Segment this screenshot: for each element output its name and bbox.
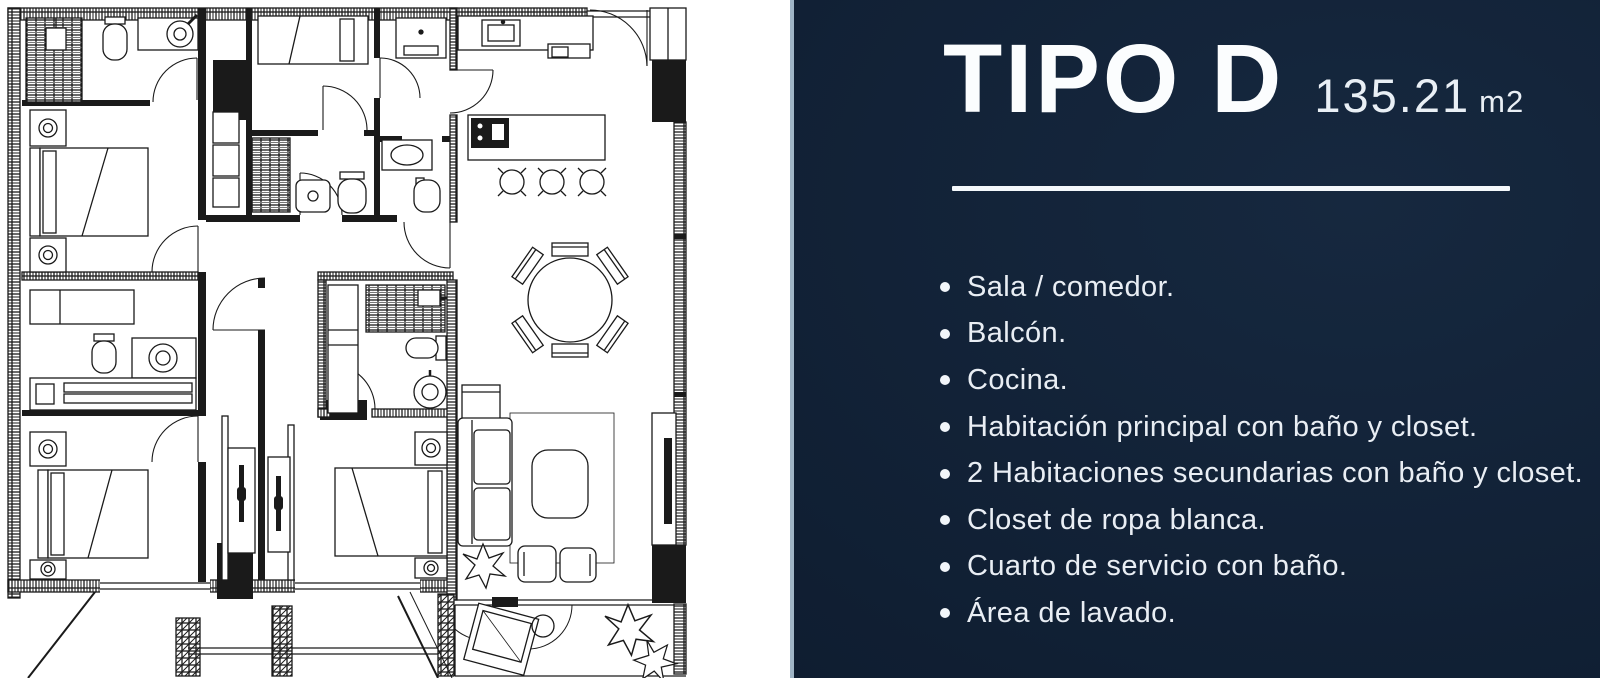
bullet-icon [940,515,950,525]
feature-label: Habitación principal con baño y closet. [967,411,1478,444]
feature-label: Área de lavado. [967,597,1176,630]
service-room [382,18,446,212]
master-bathroom [26,15,198,102]
linen-closet [213,112,239,207]
secondary-bathroom-2 [328,285,447,413]
floor-plan-svg [0,0,790,678]
secondary-bedroom-2 [30,290,196,579]
feature-label: 2 Habitaciones secundarias con baño y cl… [967,457,1583,490]
terrace [28,592,454,678]
floor-plan-area [0,0,790,678]
coffee-table [532,450,588,518]
bar-stools [498,168,606,196]
feature-item: Habitación principal con baño y closet. [940,404,1583,451]
feature-item: Sala / comedor. [940,264,1583,311]
secondary-bedroom-1 [258,16,368,64]
feature-label: Cocina. [967,364,1068,397]
dining-table [512,243,628,357]
area-unit: m2 [1479,84,1524,119]
unit-type-title: TIPO D [943,30,1284,127]
feature-item: Balcón. [940,311,1583,358]
flyer: TIPO D 135.21m2 Sala / comedor. Balcón. … [0,0,1600,678]
info-panel: TIPO D 135.21m2 Sala / comedor. Balcón. … [790,0,1600,678]
feature-label: Closet de ropa blanca. [967,504,1266,537]
tv [664,438,672,524]
bullet-icon [940,422,950,432]
feature-item: Closet de ropa blanca. [940,497,1583,544]
master-bedroom [30,110,148,272]
panel-edge-accent [790,0,794,678]
living-room [458,385,676,588]
bullet-icon [940,608,950,618]
feature-list: Sala / comedor. Balcón. Cocina. Habitaci… [940,264,1583,637]
feature-label: Sala / comedor. [967,271,1175,304]
feature-item: Cuarto de servicio con baño. [940,544,1583,591]
balcony [455,603,686,678]
bullet-icon [940,562,950,572]
feature-item: 2 Habitaciones secundarias con baño y cl… [940,450,1583,497]
bullet-icon [940,469,950,479]
secondary-bathroom-1 [252,138,366,213]
feature-label: Cuarto de servicio con baño. [967,550,1347,583]
feature-item: Área de lavado. [940,590,1583,637]
feature-label: Balcón. [967,317,1067,350]
plant-icon [605,605,653,656]
plant-icon [463,544,505,588]
bullet-icon [940,329,950,339]
sofa [458,418,512,546]
secondary-bedroom-3 [335,432,447,578]
lounge-chair [464,603,539,675]
unit-area: 135.21m2 [1314,68,1524,123]
divider-line [952,186,1510,191]
feature-item: Cocina. [940,357,1583,404]
kitchen [458,16,606,196]
area-value: 135.21 [1314,69,1470,122]
title-row: TIPO D 135.21m2 [943,30,1524,127]
bullet-icon [940,375,950,385]
bullet-icon [940,282,950,292]
